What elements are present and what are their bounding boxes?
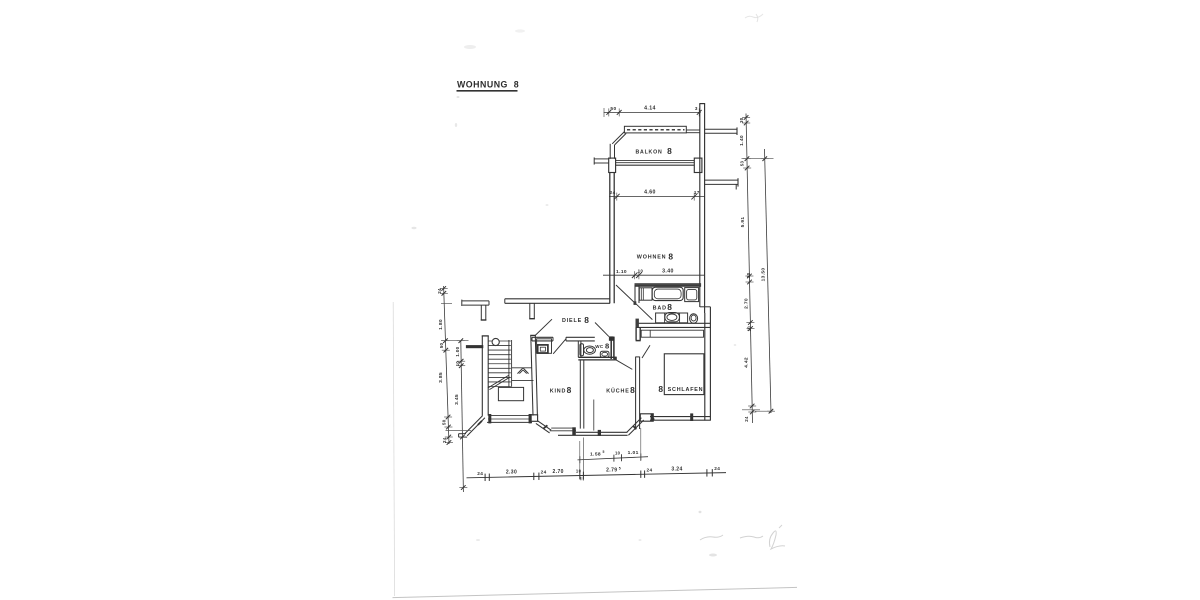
svg-text:2.30: 2.30 xyxy=(506,470,517,476)
svg-text:50: 50 xyxy=(439,343,444,349)
svg-text:5: 5 xyxy=(602,450,604,454)
svg-text:24: 24 xyxy=(744,416,749,422)
svg-text:WOHNUNG 8: WOHNUNG 8 xyxy=(457,79,519,89)
svg-text:3.24: 3.24 xyxy=(671,466,682,472)
svg-text:WC: WC xyxy=(595,344,604,349)
svg-text:8: 8 xyxy=(584,315,589,325)
svg-text:50: 50 xyxy=(442,419,447,425)
svg-text:WOHNEN: WOHNEN xyxy=(637,255,667,261)
svg-text:1.40: 1.40 xyxy=(739,135,745,146)
svg-text:1.10: 1.10 xyxy=(616,269,627,275)
svg-text:10: 10 xyxy=(455,361,460,367)
svg-text:8: 8 xyxy=(567,385,572,395)
svg-text:BAD: BAD xyxy=(653,306,667,312)
svg-text:8: 8 xyxy=(668,252,673,262)
svg-text:1.58: 1.58 xyxy=(590,451,601,457)
svg-text:10: 10 xyxy=(638,269,644,274)
svg-text:10: 10 xyxy=(615,451,621,456)
svg-text:24: 24 xyxy=(477,471,483,476)
svg-text:KÜCHE: KÜCHE xyxy=(606,387,629,394)
svg-text:KIND: KIND xyxy=(550,389,567,395)
svg-text:24: 24 xyxy=(714,466,720,471)
svg-text:3: 3 xyxy=(695,106,698,111)
svg-text:24: 24 xyxy=(541,470,547,475)
svg-text:10: 10 xyxy=(747,326,752,332)
svg-text:30: 30 xyxy=(746,272,751,278)
svg-text:5: 5 xyxy=(619,467,621,471)
svg-text:DIELE: DIELE xyxy=(562,318,582,324)
svg-text:4.42: 4.42 xyxy=(743,357,749,368)
svg-text:SCHLAFEN: SCHLAFEN xyxy=(668,387,704,393)
svg-text:50: 50 xyxy=(610,106,616,112)
svg-text:17: 17 xyxy=(694,190,700,195)
svg-text:13.50: 13.50 xyxy=(761,268,767,282)
svg-text:10: 10 xyxy=(576,469,582,474)
svg-text:8: 8 xyxy=(605,342,609,351)
svg-text:24: 24 xyxy=(610,190,616,195)
svg-text:3.85: 3.85 xyxy=(438,372,444,383)
svg-text:1.80: 1.80 xyxy=(438,319,444,330)
svg-text:2.70: 2.70 xyxy=(743,298,749,309)
svg-text:8: 8 xyxy=(667,302,672,312)
svg-text:2.79: 2.79 xyxy=(606,468,617,474)
svg-text:53: 53 xyxy=(740,161,745,167)
svg-text:24: 24 xyxy=(442,437,447,443)
svg-text:8: 8 xyxy=(630,385,635,395)
svg-text:8: 8 xyxy=(667,146,672,156)
svg-text:5.91: 5.91 xyxy=(740,217,746,228)
svg-text:2.70: 2.70 xyxy=(553,469,564,475)
svg-text:30: 30 xyxy=(739,117,744,123)
svg-text:BALKON: BALKON xyxy=(636,150,663,156)
svg-text:3.45: 3.45 xyxy=(454,394,460,405)
svg-text:1.00: 1.00 xyxy=(455,346,460,356)
svg-text:24: 24 xyxy=(646,468,652,473)
svg-text:24: 24 xyxy=(437,288,442,294)
svg-text:4.14: 4.14 xyxy=(644,106,656,112)
svg-text:8: 8 xyxy=(658,384,663,394)
svg-text:1.01: 1.01 xyxy=(628,450,639,456)
svg-text:3.40: 3.40 xyxy=(662,269,674,275)
svg-text:4.60: 4.60 xyxy=(644,190,656,196)
